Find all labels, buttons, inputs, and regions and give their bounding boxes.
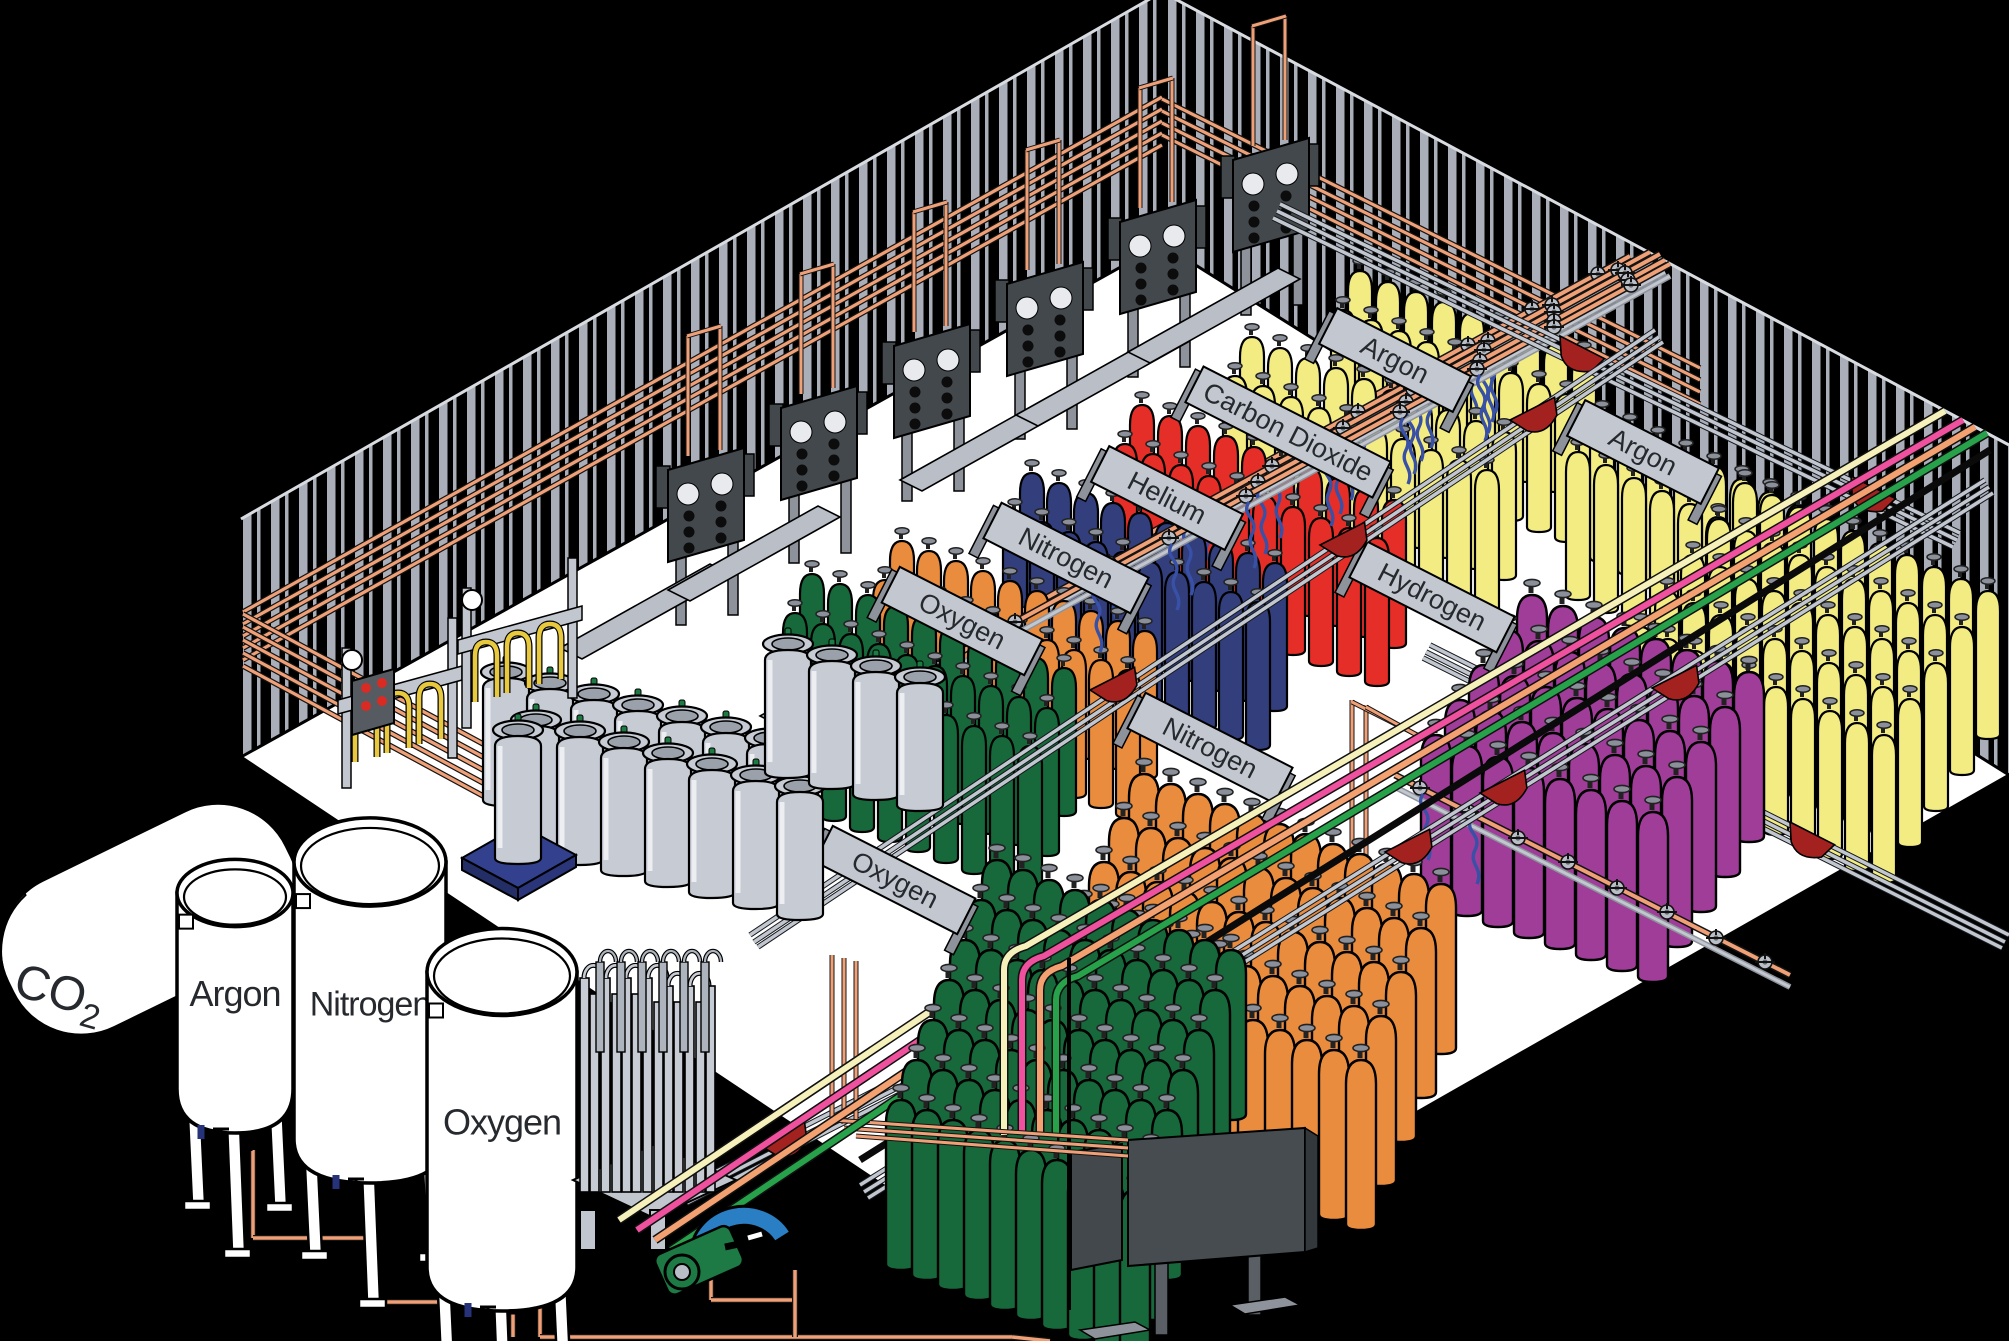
svg-text:Oxygen: Oxygen <box>443 1102 561 1143</box>
svg-text:Argon: Argon <box>189 973 280 1014</box>
svg-text:Nitrogen: Nitrogen <box>310 986 431 1024</box>
